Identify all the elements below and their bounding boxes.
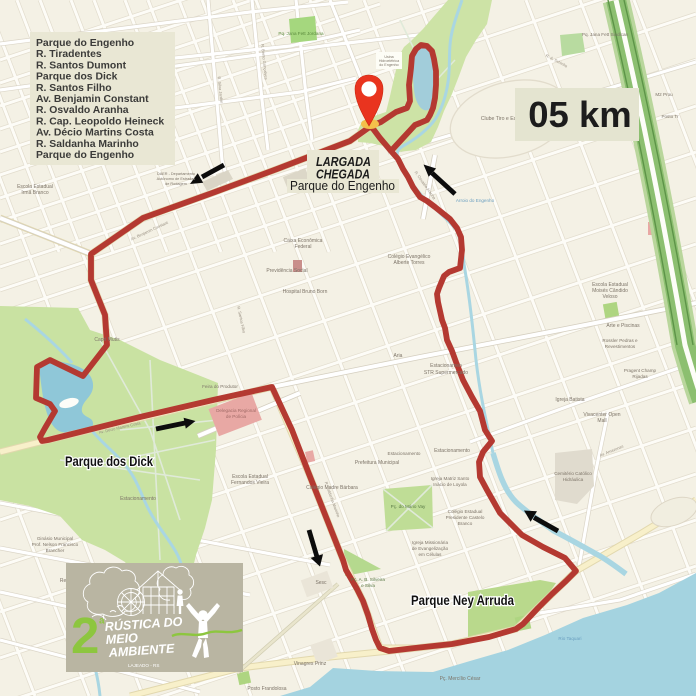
svg-text:Delegacia Regional: Delegacia Regional [216,408,256,413]
svg-text:Parque do Engenho: Parque do Engenho [36,38,134,49]
svg-text:Rio Taquari: Rio Taquari [558,636,581,641]
svg-text:R. Osvaldo Aranha: R. Osvaldo Aranha [36,105,129,116]
svg-text:em Células: em Células [419,552,443,557]
svg-text:Fernandos Vieira: Fernandos Vieira [231,480,269,486]
svg-text:Revestimentos: Revestimentos [605,344,636,349]
svg-text:05 km: 05 km [528,94,632,135]
svg-text:Federal: Federal [295,244,312,250]
svg-text:Vinagres Prinz: Vinagres Prinz [294,661,327,667]
svg-text:R. Tiradentes: R. Tiradentes [36,49,102,60]
svg-text:R. Cap. Leopoldo Heineck: R. Cap. Leopoldo Heineck [36,116,164,127]
svg-text:do Engenho: do Engenho [379,63,398,67]
svg-text:Pq. Jana Fett Jordana: Pq. Jana Fett Jordana [278,31,324,36]
svg-text:DAER - Departamento: DAER - Departamento [157,172,195,176]
svg-text:Igreja Batista: Igreja Batista [555,397,584,403]
svg-text:Pç. Mercílio César: Pç. Mercílio César [440,676,481,682]
svg-text:Estacionamento: Estacionamento [120,496,156,502]
svg-text:Alberte Torres: Alberte Torres [393,260,425,266]
svg-text:Parque do Engenho: Parque do Engenho [290,178,395,193]
svg-text:Estacionamen: Estacionamen [430,363,462,369]
svg-text:Pragent Champ: Pragent Champ [624,368,657,373]
svg-text:Inácio de Loyola: Inácio de Loyola [433,482,467,487]
svg-text:M2 Prou: M2 Prou [655,92,673,97]
svg-text:Presidente Castelo: Presidente Castelo [446,515,485,520]
svg-text:Arroio do Engenho: Arroio do Engenho [456,198,495,203]
svg-text:Pq. Jana Fett Sindican: Pq. Jana Fett Sindican [582,32,629,37]
svg-text:R. Saldanha Marinho: R. Saldanha Marinho [36,139,139,150]
svg-text:Branco: Branco [458,521,473,526]
svg-text:Prefeitura Municipal: Prefeitura Municipal [355,460,399,466]
svg-text:Arte e Piscinas: Arte e Piscinas [606,323,640,329]
svg-text:Av. Décio Martins Costa: Av. Décio Martins Costa [36,128,154,139]
svg-text:Parque Ney Arruda: Parque Ney Arruda [411,592,514,608]
svg-text:STR Supermercado: STR Supermercado [424,370,468,376]
svg-text:de Rodagem: de Rodagem [165,182,187,186]
svg-text:LAJEADO - RS: LAJEADO - RS [128,663,159,668]
svg-text:Cemitério Católico: Cemitério Católico [554,471,592,476]
svg-text:Brancher: Brancher [46,548,65,553]
svg-text:Previdência Social: Previdência Social [266,268,307,274]
svg-text:Aria: Aria [394,353,403,359]
svg-text:Parque dos Dick: Parque dos Dick [65,453,153,469]
svg-text:Colégio Estadual: Colégio Estadual [448,509,483,514]
svg-text:Autônomo de Estradas: Autônomo de Estradas [157,177,196,181]
svg-text:Hidráulica: Hidráulica [563,477,584,482]
svg-text:R. Santos Dumont: R. Santos Dumont [36,60,127,71]
svg-text:Pç. A. B. Silveira: Pç. A. B. Silveira [351,577,385,582]
svg-text:de Evangelização: de Evangelização [412,546,449,551]
svg-text:Av. Benjamin Constant: Av. Benjamin Constant [36,94,149,105]
svg-text:Posto Tr: Posto Tr [661,114,679,119]
svg-text:Estacionamento: Estacionamento [434,448,470,454]
svg-text:Feira do Produtor: Feira do Produtor [202,384,238,389]
svg-text:Prof. Nelson Francisco: Prof. Nelson Francisco [32,542,79,547]
svg-text:Capri Mutis: Capri Mutis [94,337,120,343]
svg-text:2: 2 [71,607,99,664]
svg-text:Mall: Mall [597,418,606,424]
svg-text:Veloso: Veloso [602,294,617,300]
svg-text:Estacionamento: Estacionamento [388,451,421,456]
svg-text:Parque do Engenho: Parque do Engenho [36,150,134,161]
svg-text:Parque dos Dick: Parque dos Dick [36,72,118,83]
svg-text:Hospital Bruno Born: Hospital Bruno Born [283,289,328,295]
svg-text:Posto Frandolosa: Posto Frandolosa [247,686,286,692]
svg-text:Sesc: Sesc [315,580,327,586]
svg-text:Clube Tiro e Esp: Clube Tiro e Esp [481,116,519,122]
svg-text:Rossler Pedras e: Rossler Pedras e [602,338,638,343]
svg-text:Irmã Branco: Irmã Branco [21,190,48,196]
svg-text:e Silva: e Silva [361,583,375,588]
svg-text:Ginásio Municipal: Ginásio Municipal [37,536,73,541]
svg-text:de Polícia: de Polícia [226,414,247,419]
svg-text:Igreja Missionária: Igreja Missionária [412,540,448,545]
svg-text:R. Santos Filho: R. Santos Filho [36,83,112,94]
svg-text:Rijadas: Rijadas [632,374,648,379]
svg-text:Igreja Matriz Santo: Igreja Matriz Santo [431,476,470,481]
svg-text:Pç. do Mário Vay: Pç. do Mário Vay [391,504,426,509]
